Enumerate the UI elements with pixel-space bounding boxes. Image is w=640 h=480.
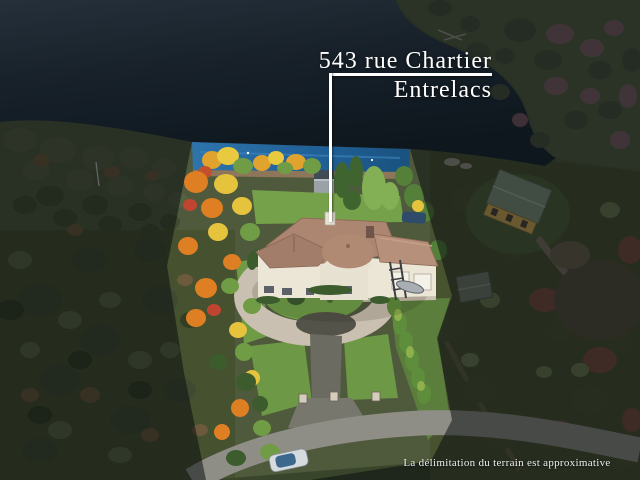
chimney-2 [366, 226, 374, 238]
pointer-line-horizontal [329, 73, 492, 76]
covered-boat [402, 211, 427, 224]
pointer-line-vertical [329, 73, 332, 222]
address-line-2: Entrelacs [394, 77, 492, 104]
boundary-disclaimer: La délimitation du terrain est approxima… [396, 457, 618, 469]
address-line-1: 543 rue Chartier [319, 48, 492, 75]
aerial-listing-photo: 543 rue Chartier Entrelacs La délimitati… [0, 0, 640, 480]
